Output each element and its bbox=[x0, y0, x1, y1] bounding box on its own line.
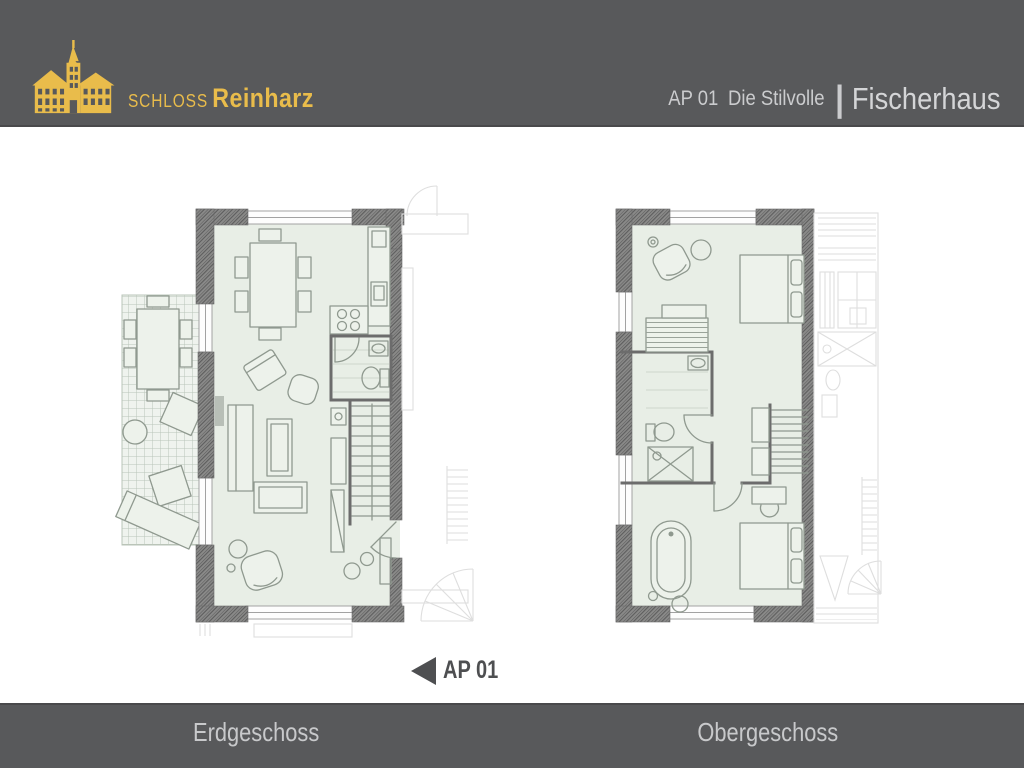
brand-prefix: SCHLOSS bbox=[128, 91, 208, 112]
floorplan-erdgeschoss bbox=[116, 186, 473, 637]
unit-name: Die Stilvolle bbox=[728, 87, 825, 111]
brand: SCHLOSS Reinharz bbox=[30, 40, 344, 118]
floorplan-canvas: AP 01 bbox=[0, 127, 1024, 703]
page-title: AP 01 Die Stilvolle | Fischerhaus bbox=[668, 81, 1000, 117]
floor-label-obergeschoss: Obergeschoss bbox=[512, 705, 1024, 768]
floorplan-obergeschoss bbox=[616, 209, 881, 623]
floor-plans-drawing bbox=[0, 127, 1024, 703]
header: SCHLOSS Reinharz AP 01 Die Stilvolle | F… bbox=[0, 0, 1024, 127]
unit-marker[interactable]: AP 01 bbox=[411, 656, 512, 685]
unit-code: AP 01 bbox=[668, 87, 718, 111]
left-arrow-icon bbox=[411, 657, 436, 685]
floor-label-erdgeschoss: Erdgeschoss bbox=[0, 705, 512, 768]
brand-name: Reinharz bbox=[212, 83, 314, 114]
unit-marker-label: AP 01 bbox=[443, 656, 498, 685]
castle-logo-icon bbox=[30, 40, 116, 118]
building-name: Fischerhaus bbox=[851, 81, 1000, 117]
brand-wordmark: SCHLOSS Reinharz bbox=[128, 83, 314, 114]
footer: Erdgeschoss Obergeschoss bbox=[0, 703, 1024, 768]
page: SCHLOSS Reinharz AP 01 Die Stilvolle | F… bbox=[0, 0, 1024, 768]
title-separator: | bbox=[835, 84, 844, 114]
neighbor-context-og bbox=[814, 213, 881, 623]
